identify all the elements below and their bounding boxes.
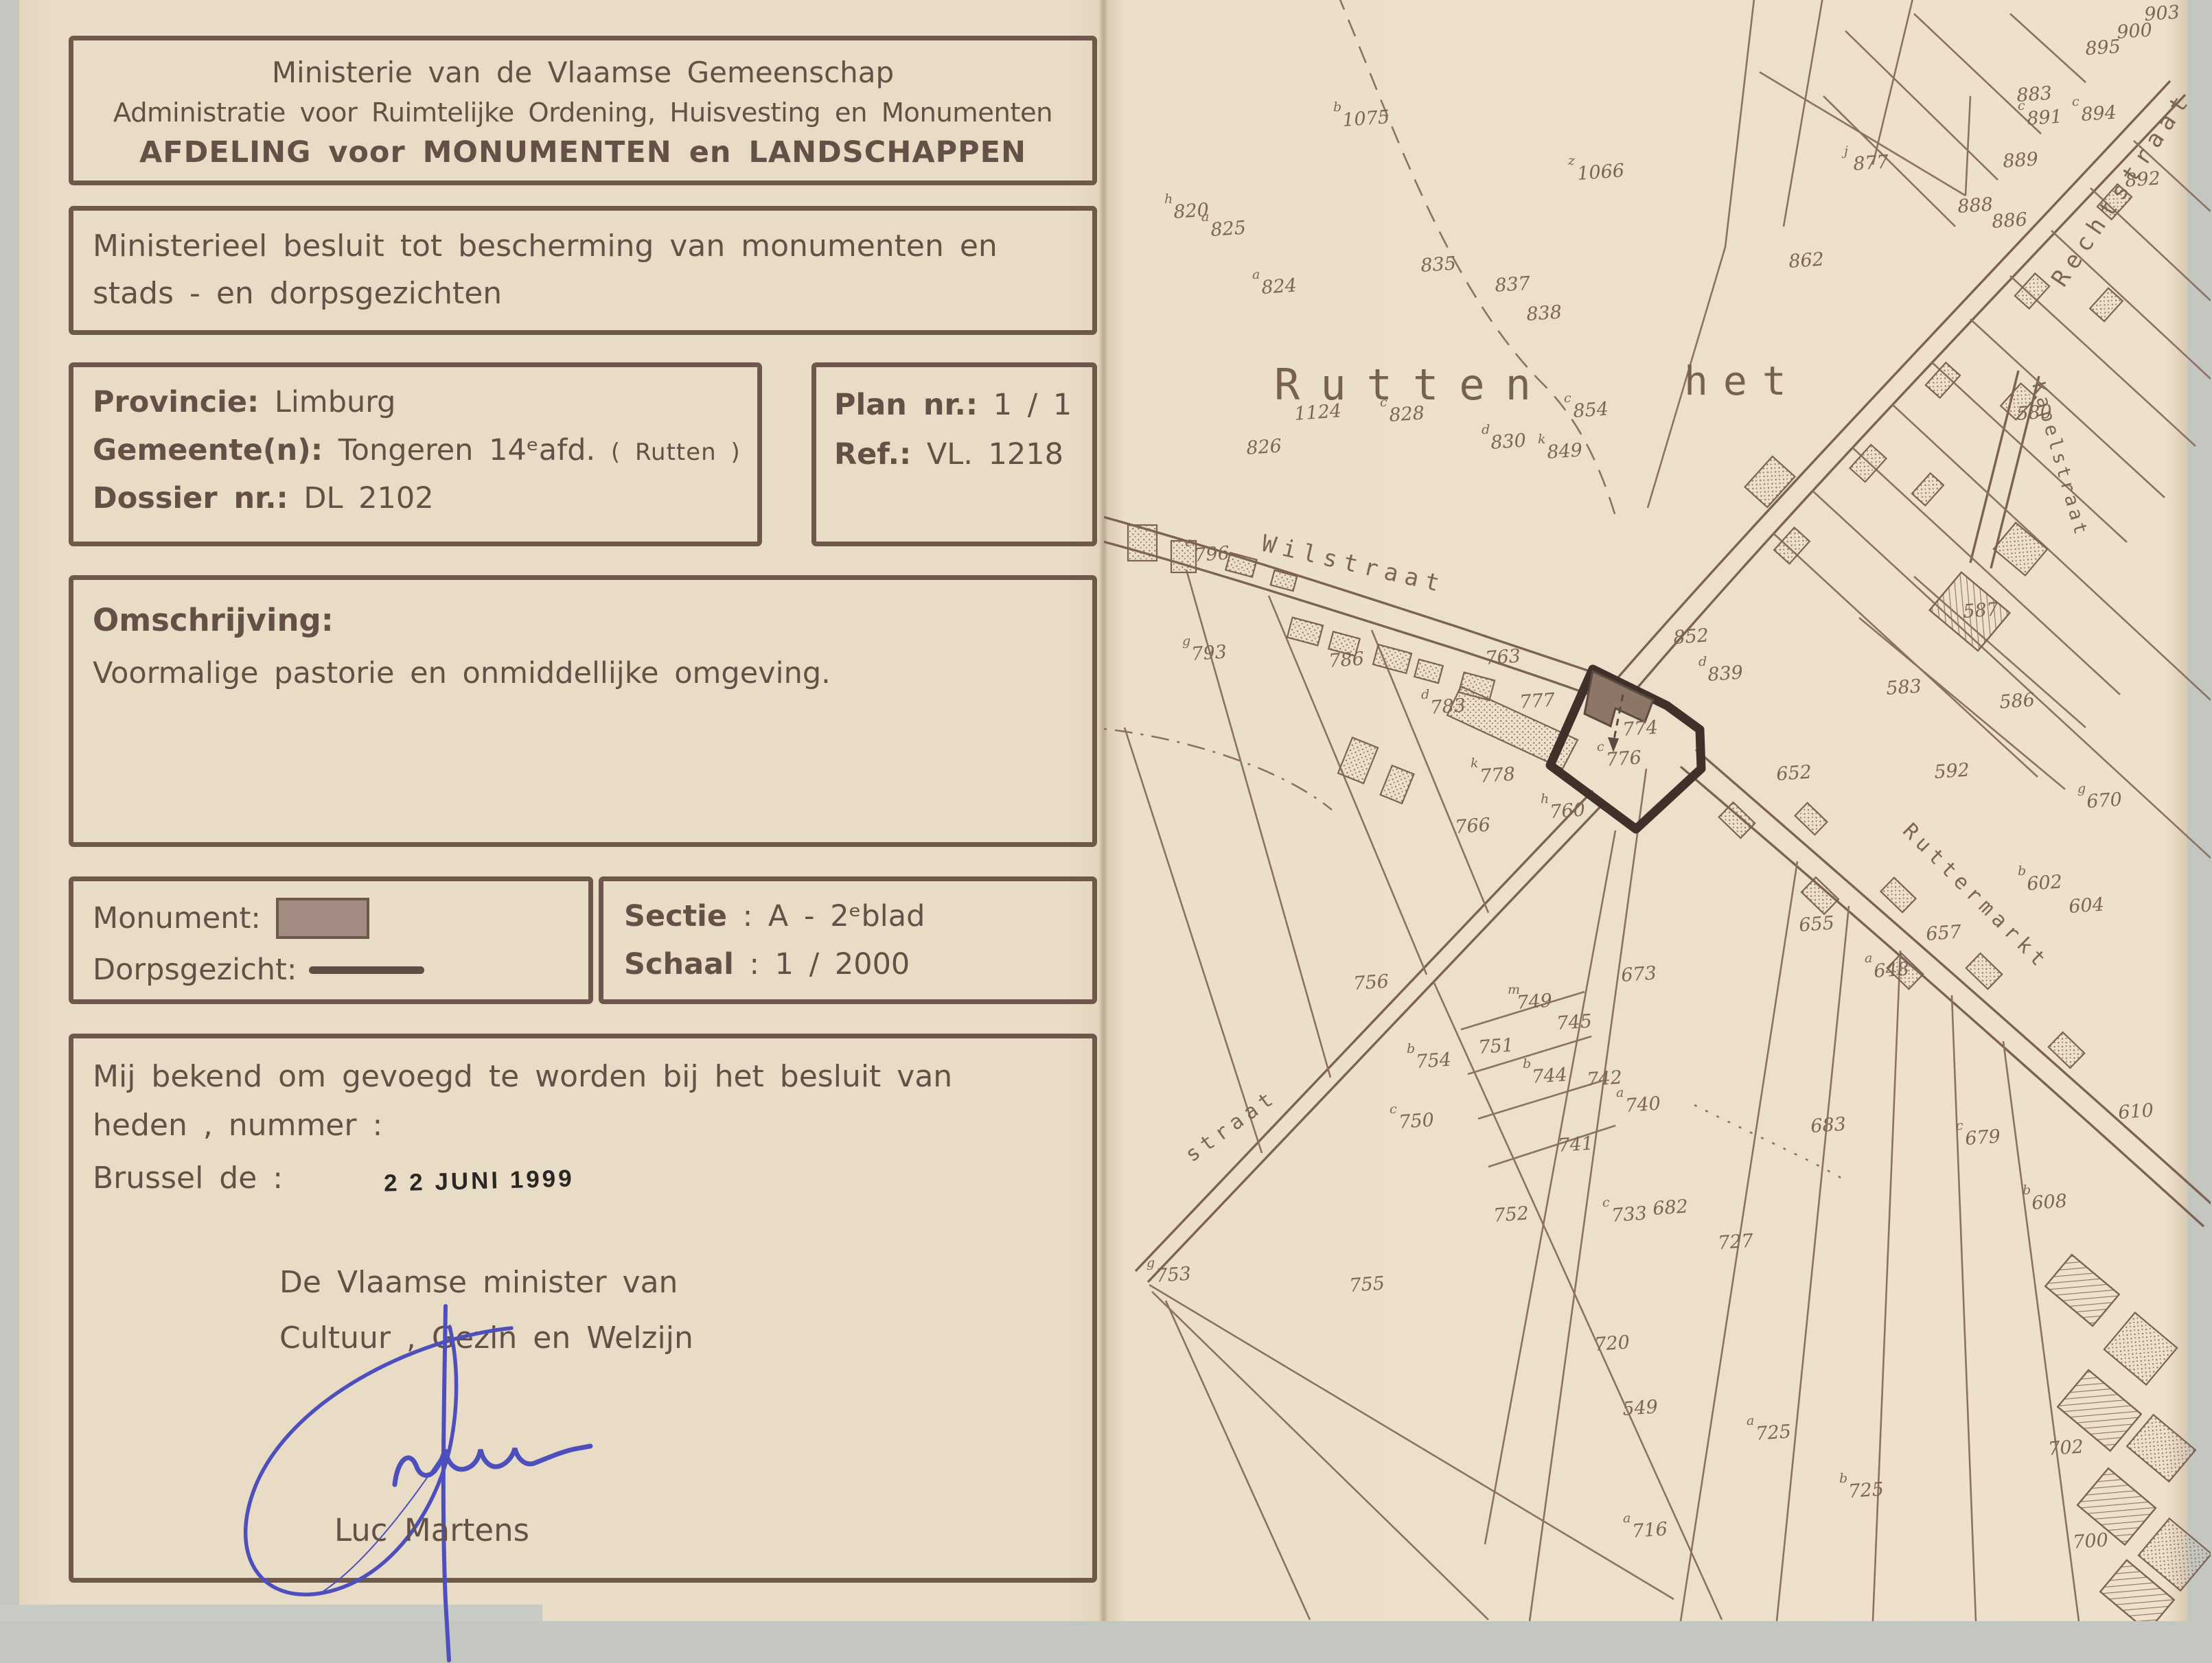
parcel-number: 670 [2086,789,2123,813]
parcel-number: 854 [1572,398,1609,422]
afdeling-title: AFDELING voor MONUMENTEN en LANDSCHAPPEN [73,135,1092,170]
dorpsgezicht-label: Dorpsgezicht: [93,953,297,987]
parcel-number: 751 [1477,1034,1514,1058]
dossier-row: Dossier nr.: DL 2102 [93,481,757,515]
dossier-value: DL 2102 [303,481,433,515]
parcel-number: 604 [2068,894,2105,918]
parcel-letter: d [1698,654,1707,669]
parcel-number: 683 [1810,1113,1847,1137]
place-label: het [1684,358,1801,404]
parcel-letter: d [1421,687,1429,702]
legend-box: Monument: Dorpsgezicht: [69,876,593,1004]
parcel-letter: c [2072,94,2079,109]
street-label: Ruttermarkt [1898,819,2053,975]
parcel-number: 580 [2016,401,2053,425]
parcel-number: 1075 [1341,106,1390,131]
schaal-label: Schaal [624,947,734,981]
parcel-number: 755 [1348,1272,1385,1296]
decree-box: Ministerieel besluit tot bescherming van… [69,206,1097,335]
parcel-number: 796 [1193,542,1230,566]
minister-title: De Vlaamse minister van Cultuur , Gezin … [279,1265,693,1356]
parcel-letter: h [1541,791,1549,806]
parcel-number: 549 [1622,1396,1659,1420]
parcel-number: 652 [1775,761,1812,785]
note-line2: heden , nummer : [93,1108,1092,1143]
parcel-number: 586 [1998,689,2036,713]
date-stamp: 2 2 JUNI 1999 [384,1165,575,1197]
ministry-title: Ministerie van de Vlaamse Gemeenschap [73,56,1092,89]
parcel-letter: c [1602,1195,1610,1210]
parcel-number: 824 [1260,275,1298,299]
parcel-number: 778 [1479,763,1516,787]
parcel-number: 583 [1885,675,1922,699]
scanner-background-bottom [0,1605,542,1621]
parcel-number: 745 [1556,1010,1593,1034]
parcel-letter: b [1839,1471,1847,1486]
parcel-letter: k [1538,432,1546,447]
municipality-suffix: ( Rutten ) [611,439,741,466]
scanned-document: Ministerie van de Vlaamse Gemeenschap Ad… [0,0,2212,1621]
plan-row: Plan nr.: 1 / 1 [834,388,1092,422]
parcel-letter: e [1185,535,1193,550]
parcel-number: 889 [2002,148,2039,172]
parcel-number: 825 [1210,217,1247,241]
parcel-number: 754 [1415,1049,1452,1073]
street-label: straat [1181,1084,1282,1167]
parcel-number: 891 [2026,106,2063,130]
parcel-number: 830 [1490,430,1527,454]
parcel-letter: g [2077,781,2086,796]
parcel-letter: a [1616,1085,1624,1100]
dorpsgezicht-legend-row: Dorpsgezicht: [93,953,588,987]
parcel-number: 1066 [1576,160,1625,185]
description-box: Omschrijving: Voormalige pastorie en onm… [69,575,1097,847]
parcel-number: 753 [1155,1263,1192,1287]
parcel-number: 720 [1593,1331,1631,1356]
parcel-letter: j [1841,143,1848,159]
ref-row: Ref.: VL. 1218 [834,437,1092,472]
parcel-number: 835 [1420,253,1457,277]
parcel-letter: a [1623,1511,1631,1526]
parcel-number: 777 [1519,689,1556,713]
parcel-letter: k [1471,756,1479,771]
parcel-number: 774 [1622,717,1659,741]
parcel-number: 883 [2016,82,2053,106]
parcel-number: 702 [2047,1436,2084,1460]
parcel-number: 673 [1620,962,1657,986]
parcel-number: 679 [1964,1126,2001,1150]
parcel-letter: h [1164,191,1173,207]
decree-line2: stads - en dorpsgezichten [93,276,1092,311]
parcel-number: 783 [1429,695,1466,719]
parcel-number: 725 [1755,1421,1792,1445]
monument-color-swatch [276,898,369,939]
parcel-letter: g [1147,1255,1155,1270]
parcel-number: 838 [1525,301,1563,325]
administration-title: Administratie voor Ruimtelijke Ordening,… [73,97,1092,128]
ref-value: VL. 1218 [927,437,1063,472]
parcel-number: 752 [1493,1202,1530,1226]
municipality-value: Tongeren 14ᵉafd. [338,433,595,467]
parcel-letter: c [1564,391,1571,406]
ref-label: Ref.: [834,437,911,472]
signatory-name: Luc Martens [334,1512,529,1548]
parcel-number: 877 [1852,151,1889,175]
parcel-letter: c [1597,739,1604,754]
province-label: Provincie: [93,385,259,419]
parcel-number: 828 [1388,402,1425,426]
parcel-letter: b [2018,863,2026,879]
parcel-letter: a [1747,1413,1754,1428]
sectie-box: Sectie : A - 2ᵉblad Schaal : 1 / 2000 [599,876,1097,1004]
schaal-value: : 1 / 2000 [750,947,910,981]
note-box: Mij bekend om gevoegd te worden bij het … [69,1034,1097,1583]
parcel-number: 682 [1652,1196,1689,1220]
parcel-number: 727 [1717,1230,1754,1254]
plan-ref-box: Plan nr.: 1 / 1 Ref.: VL. 1218 [811,362,1097,546]
parcel-letter: c [1380,395,1387,410]
parcel-number: 849 [1546,439,1583,463]
parcel-number: 900 [2116,19,2153,43]
parcel-letter: b [1333,100,1341,115]
parcel-number: 894 [2080,102,2117,126]
parcel-number: 839 [1707,662,1744,686]
parcel-letter: c [1956,1118,1963,1133]
parcel-number: 602 [2026,871,2063,895]
parcel-letter: c [1390,1102,1397,1117]
dossier-label: Dossier nr.: [93,481,288,515]
parcel-number: 888 [1957,194,1994,218]
parcel-number: 592 [1933,759,1970,783]
parcel-letter: m [1508,982,1520,997]
parcel-number: 587 [1962,598,1999,623]
parcel-letter: z [1567,153,1576,168]
parcel-number: 760 [1549,799,1586,823]
parcel-number: 741 [1557,1132,1594,1156]
parcel-number: 892 [2124,167,2161,191]
parcel-letter: b [1407,1041,1415,1056]
parcel-number: 655 [1798,912,1835,936]
parcel-letter: g [1182,633,1190,649]
parcel-number: 716 [1631,1518,1668,1542]
parcel-letter: b [2023,1183,2031,1198]
sectie-value: : A - 2ᵉblad [743,899,925,933]
monument-legend-row: Monument: [93,898,588,939]
parcel-number: 700 [2072,1529,2109,1553]
minister-line1: De Vlaamse minister van [279,1265,693,1300]
parcel-number: 852 [1672,625,1709,649]
parcel-number: 895 [2084,36,2121,60]
minister-line2: Cultuur , Gezin en Welzijn [279,1321,693,1356]
parcel-number: 1124 [1293,400,1342,425]
parcel-number: 837 [1494,272,1531,296]
parcel-number: 750 [1398,1109,1435,1133]
plan-label: Plan nr.: [834,388,978,422]
monument-label: Monument: [93,901,261,935]
note-line1: Mij bekend om gevoegd te worden bij het … [93,1059,1092,1094]
parcel-letter: a [1201,209,1209,224]
parcel-number: 886 [1991,209,2028,233]
province-row: Provincie: Limburg [93,385,757,419]
description-value: Voormalige pastorie en onmiddellijke omg… [93,656,1092,690]
parcel-number: 793 [1190,641,1228,665]
province-box: Provincie: Limburg Gemeente(n): Tongeren… [69,362,762,546]
sectie-label: Sectie [624,899,727,933]
description-label: Omschrijving: [93,602,1092,638]
plan-value: 1 / 1 [993,388,1072,422]
parcel-number: 749 [1516,990,1553,1014]
parcel-number: 740 [1624,1093,1661,1117]
decree-line1: Ministerieel besluit tot bescherming van… [93,229,1092,264]
parcel-number: 608 [2031,1190,2068,1214]
parcel-number: 776 [1605,747,1642,771]
parcel-number: 862 [1788,248,1825,272]
parcel-letter: d [1482,422,1490,437]
sectie-row: Sectie : A - 2ᵉblad [624,899,1092,933]
parcel-number: 756 [1352,970,1390,995]
parcel-number: 763 [1484,645,1521,669]
header-box: Ministerie van de Vlaamse Gemeenschap Ad… [69,36,1097,185]
province-value: Limburg [275,385,396,419]
parcel-letter: a [1252,267,1260,282]
parcel-number: 744 [1531,1064,1568,1088]
dorpsgezicht-line-symbol [309,966,424,974]
municipality-row: Gemeente(n): Tongeren 14ᵉafd. ( Rutten ) [93,433,757,467]
parcel-number: 648 [1873,958,1910,982]
municipality-label: Gemeente(n): [93,433,323,467]
parcel-number: 826 [1245,435,1282,459]
parcel-letter: a [1865,951,1872,966]
schaal-row: Schaal : 1 / 2000 [624,947,1092,981]
parcel-number: 786 [1328,648,1365,672]
parcel-number: 725 [1847,1478,1885,1502]
parcel-number: 733 [1611,1202,1648,1226]
parcel-number: 766 [1454,814,1491,838]
parcel-number: 657 [1925,921,1962,945]
parcel-number: 610 [2117,1100,2154,1124]
brussel-label: Brussel de : [93,1161,1092,1196]
cadastral-map: RuttenhetWilstraatRechtstraatRuttermarkt… [1104,0,2211,1621]
parcel-letter: b [1523,1056,1531,1071]
